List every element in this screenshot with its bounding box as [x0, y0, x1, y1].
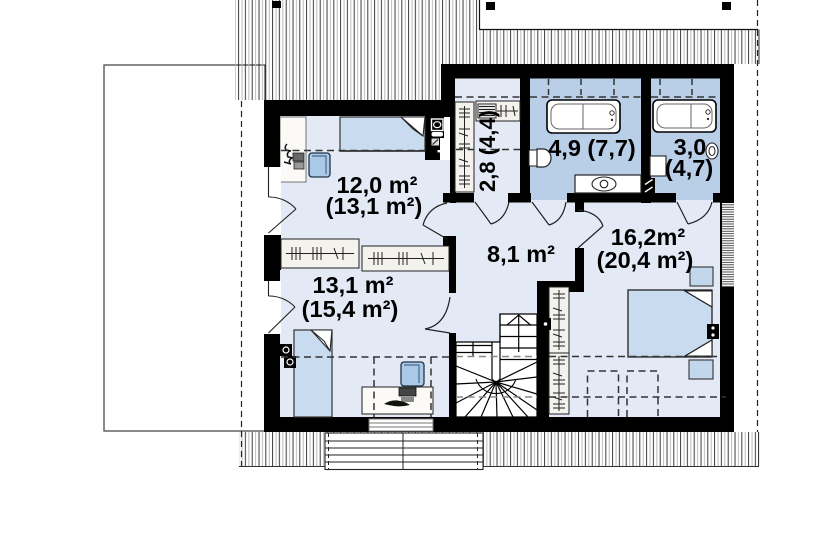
svg-text:4,9 (7,7): 4,9 (7,7) — [548, 135, 636, 161]
svg-text:(15,4 m²): (15,4 m²) — [302, 296, 399, 322]
svg-text:8,1 m²: 8,1 m² — [487, 241, 555, 267]
svg-text:2,8 (4,4): 2,8 (4,4) — [475, 110, 500, 192]
svg-text:(4,7): (4,7) — [665, 155, 713, 181]
svg-text:(20,4 m²): (20,4 m²) — [597, 247, 694, 273]
svg-text:(13,1 m²): (13,1 m²) — [326, 193, 423, 219]
svg-text:13,1 m²: 13,1 m² — [313, 272, 394, 298]
